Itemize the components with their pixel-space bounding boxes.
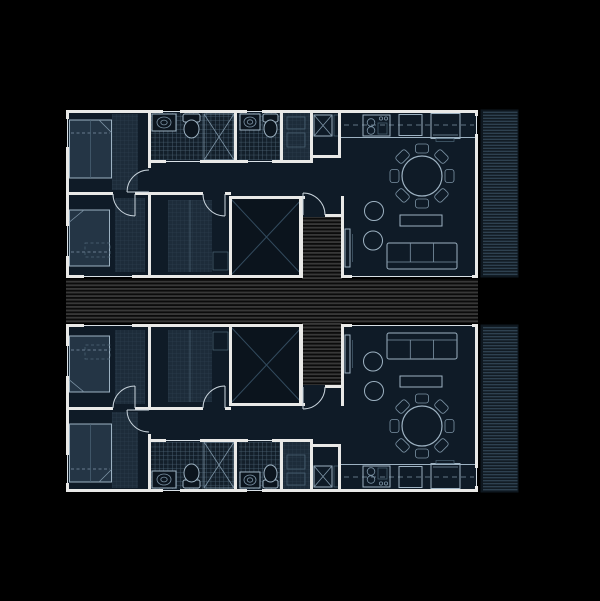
toilet [263, 114, 278, 137]
toilet [183, 114, 200, 138]
bedroom-1-wardrobe [112, 114, 138, 190]
washbasin [152, 114, 176, 131]
bed-bedroom-2 [70, 210, 110, 266]
washbasin [240, 114, 260, 130]
floor-plan-stage [0, 0, 600, 601]
unit-upper [66, 110, 518, 279]
patio-void [231, 199, 302, 275]
side-terrace [481, 110, 518, 277]
central-deck-walkway [66, 279, 478, 323]
bed-bedroom-1 [70, 120, 112, 178]
unit-lower [66, 323, 518, 492]
entry-walkway [302, 217, 342, 279]
floor-plan-canvas [0, 0, 600, 601]
